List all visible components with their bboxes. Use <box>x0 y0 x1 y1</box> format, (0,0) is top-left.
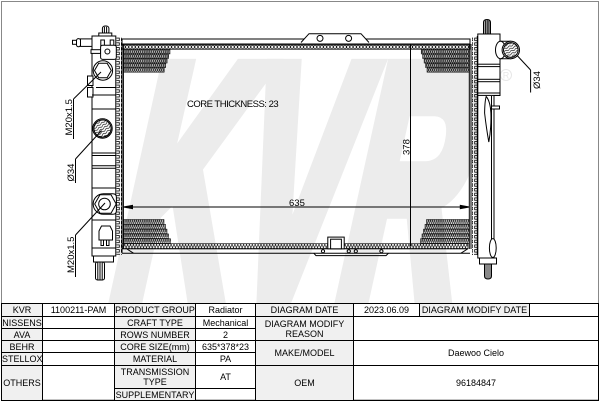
svg-text:Ø34: Ø34 <box>532 71 543 89</box>
svg-text:378: 378 <box>401 139 412 155</box>
svg-text:M20x1.5: M20x1.5 <box>66 237 77 273</box>
svg-text:635: 635 <box>289 198 305 209</box>
svg-text:R: R <box>503 70 510 80</box>
svg-text:CORE THICKNESS: 23: CORE THICKNESS: 23 <box>187 99 278 110</box>
svg-text:Ø34: Ø34 <box>66 164 77 182</box>
svg-text:M20x1.5: M20x1.5 <box>64 99 75 135</box>
